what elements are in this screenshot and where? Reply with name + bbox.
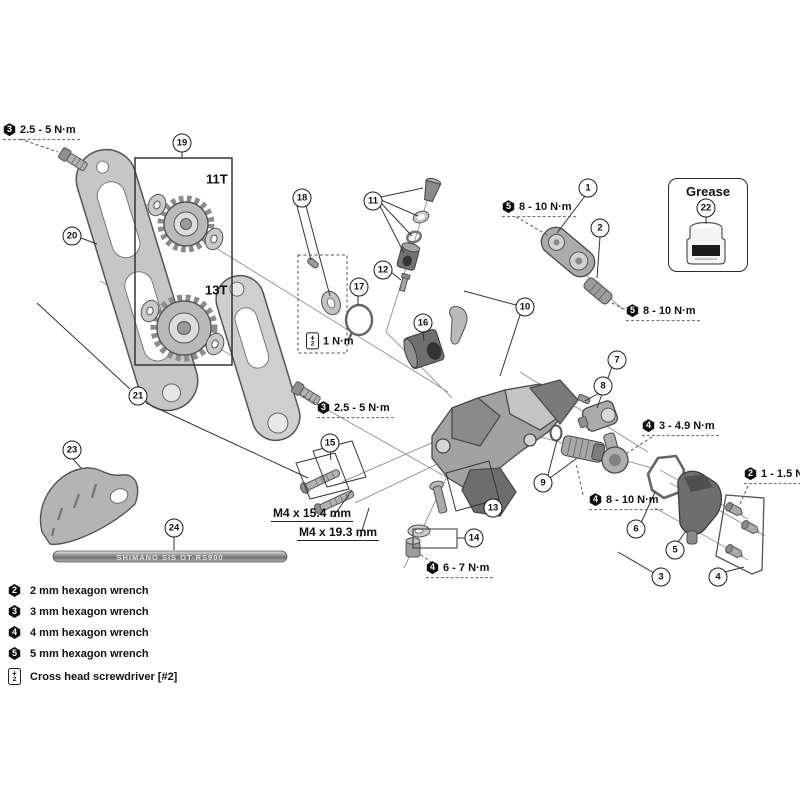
part-callout[interactable]: 17	[350, 278, 369, 297]
part-number: 14	[469, 533, 480, 544]
torque-label: 5 8 - 10 N·m	[502, 200, 576, 217]
torque-label: 5 8 - 10 N·m	[626, 304, 700, 321]
b-spring	[551, 426, 606, 464]
tool-badge-icon: +2	[306, 332, 319, 349]
tension-pulley-13t	[154, 298, 214, 358]
part-callout[interactable]: 16	[414, 314, 433, 333]
tool-badge-icon: 2	[8, 584, 21, 597]
tool-badge-icon: 5	[502, 200, 515, 213]
part-callout[interactable]: 15	[321, 434, 340, 453]
tool-badge-icon: 2	[744, 467, 757, 480]
part-callout[interactable]: 9	[534, 474, 553, 493]
support-bracket-plate	[40, 468, 137, 544]
torque-label: 4 8 - 10 N·m	[589, 493, 663, 510]
part-number: 21	[133, 391, 144, 402]
part-callout[interactable]: 2	[591, 219, 610, 238]
torque-label: 3 2.5 - 5 N·m	[317, 401, 394, 418]
tool-size: 4	[12, 628, 17, 637]
part-number: 10	[520, 302, 531, 313]
tool-size: 3	[7, 125, 12, 134]
torque-value: 8 - 10 N·m	[643, 305, 696, 317]
derailleur-body	[432, 380, 578, 516]
legend-row: 3 3 mm hexagon wrench	[8, 605, 177, 618]
part-callout[interactable]: 6	[627, 520, 646, 539]
tool-size: 4	[593, 495, 598, 504]
part-callout[interactable]: 20	[63, 227, 82, 246]
cage-washer	[318, 289, 343, 318]
stopper-pin	[306, 257, 319, 269]
part-callout[interactable]: 21	[129, 387, 148, 406]
tool-badge-icon: 4	[8, 626, 21, 639]
cable-print-text: SHIMANO SIS OT-RS900	[116, 553, 223, 562]
part-callout[interactable]: 23	[63, 441, 82, 460]
part-callout[interactable]: 7	[608, 351, 627, 370]
torque-label: 4 6 - 7 N·m	[426, 561, 493, 578]
part-number: 24	[169, 523, 180, 534]
torque-label: 4 3 - 4.9 N·m	[642, 419, 719, 436]
tool-subsize: 2	[13, 677, 17, 684]
part-number: 15	[325, 438, 336, 449]
tool-badge-icon: 4	[642, 419, 655, 432]
tool-size: 3	[12, 607, 17, 616]
part-callout[interactable]: 24	[165, 519, 184, 538]
part-number: 12	[378, 265, 389, 276]
torque-value: 6 - 7 N·m	[443, 562, 489, 574]
hanger-washer	[408, 525, 430, 537]
tool-badge-icon: 3	[317, 401, 330, 414]
part-number: 17	[354, 282, 365, 293]
torque-value: 8 - 10 N·m	[606, 494, 659, 506]
part-number: 1	[585, 183, 590, 194]
tool-badge-icon: 5	[626, 304, 639, 317]
torque-value: 3 - 4.9 N·m	[659, 420, 715, 432]
guide-pulley-11t	[161, 199, 211, 249]
set-screw	[398, 273, 410, 291]
exploded-parts-diagram: SHIMANO SIS OT-RS900	[0, 0, 800, 800]
legend-label: 3 mm hexagon wrench	[30, 606, 149, 618]
tool-badge-icon: 4	[589, 493, 602, 506]
tool-size: 2	[748, 469, 753, 478]
torque-value: 2.5 - 5 N·m	[334, 402, 390, 414]
part-callout[interactable]: 5	[666, 541, 685, 560]
tool-size: 3	[321, 403, 326, 412]
part-number: 11	[368, 196, 378, 207]
part-number: 23	[67, 445, 78, 456]
torque-label: 3 2.5 - 5 N·m	[3, 123, 80, 140]
part-number: 2	[597, 223, 602, 234]
part-callout[interactable]: 1	[579, 179, 598, 198]
tool-size: 4	[646, 421, 651, 430]
part-number: 20	[67, 231, 78, 242]
cover-panel-outline	[716, 495, 764, 574]
legend-row: 4 4 mm hexagon wrench	[8, 626, 177, 639]
legend-row: 5 5 mm hexagon wrench	[8, 647, 177, 660]
part-number: 13	[488, 503, 499, 514]
part-number: 3	[658, 572, 663, 583]
part-number: 22	[701, 203, 712, 214]
part-number: 6	[633, 524, 638, 535]
part-callout[interactable]: 19	[173, 134, 192, 153]
tool-badge-icon: 3	[3, 123, 16, 136]
tool-badge-icon: 3	[8, 605, 21, 618]
cable-guide-hook	[450, 306, 467, 344]
dimension-label: M4 x 15.4 mm	[271, 506, 353, 522]
part-callout[interactable]: 8	[594, 377, 613, 396]
torque-value: 1 - 1.5 N·m	[761, 468, 800, 480]
dimension-label: M4 x 19.3 mm	[297, 525, 379, 541]
outer-cage-plate	[69, 142, 205, 418]
part-callout[interactable]: 22	[697, 199, 716, 218]
tool-size: 4	[430, 563, 435, 572]
part-callout[interactable]: 11	[364, 192, 383, 211]
part-callout[interactable]: 4	[709, 568, 728, 587]
torque-value: 2.5 - 5 N·m	[20, 124, 76, 136]
tool-badge-icon: 5	[8, 647, 21, 660]
tool-size: 5	[12, 649, 17, 658]
legend-row: +2 Cross head screwdriver [#2]	[8, 668, 177, 685]
cable-outer-casing: SHIMANO SIS OT-RS900	[53, 551, 287, 562]
link-axle-bolt	[582, 276, 613, 305]
legend-label: Cross head screwdriver [#2]	[30, 671, 177, 683]
tool-subsize: 2	[311, 341, 315, 348]
part-number: 5	[672, 545, 677, 556]
part-callout[interactable]: 3	[652, 568, 671, 587]
legend-label: 5 mm hexagon wrench	[30, 648, 149, 660]
part-number: 9	[540, 478, 545, 489]
grease-title: Grease	[669, 184, 747, 199]
legend-row: 2 2 mm hexagon wrench	[8, 584, 177, 597]
part-number: 8	[600, 381, 605, 392]
part-number: 16	[418, 318, 429, 329]
torque-label: 2 1 - 1.5 N·m	[744, 467, 800, 484]
tool-legend: 2 2 mm hexagon wrench 3 3 mm hexagon wre…	[8, 584, 177, 685]
legend-label: 2 mm hexagon wrench	[30, 585, 149, 597]
tool-badge-icon: +2	[8, 668, 21, 685]
grease-box: Grease	[668, 178, 748, 272]
part-number: 4	[715, 572, 720, 583]
torque-label: +2 1 N·m	[306, 332, 358, 352]
tool-badge-icon: 4	[426, 561, 439, 574]
cage-stopper-stack	[396, 177, 441, 271]
torque-value: 1 N·m	[323, 335, 354, 347]
part-callout[interactable]: 14	[465, 529, 484, 548]
torque-value: 8 - 10 N·m	[519, 201, 572, 213]
cover-screws	[724, 501, 760, 559]
tool-size: 5	[506, 202, 511, 211]
pulley-tooth-label: 13T	[205, 283, 227, 298]
part-callout[interactable]: 18	[293, 189, 312, 208]
tool-size: 5	[630, 306, 635, 315]
part-callout[interactable]: 10	[516, 298, 535, 317]
part-number: 7	[614, 355, 619, 366]
part-number: 18	[297, 193, 308, 204]
legend-label: 4 mm hexagon wrench	[30, 627, 149, 639]
part-number: 19	[177, 138, 188, 149]
tool-size: 2	[12, 586, 17, 595]
part-callout[interactable]: 12	[374, 261, 393, 280]
pulley-tooth-label: 11T	[206, 172, 228, 187]
part-callout[interactable]: 13	[484, 499, 503, 518]
